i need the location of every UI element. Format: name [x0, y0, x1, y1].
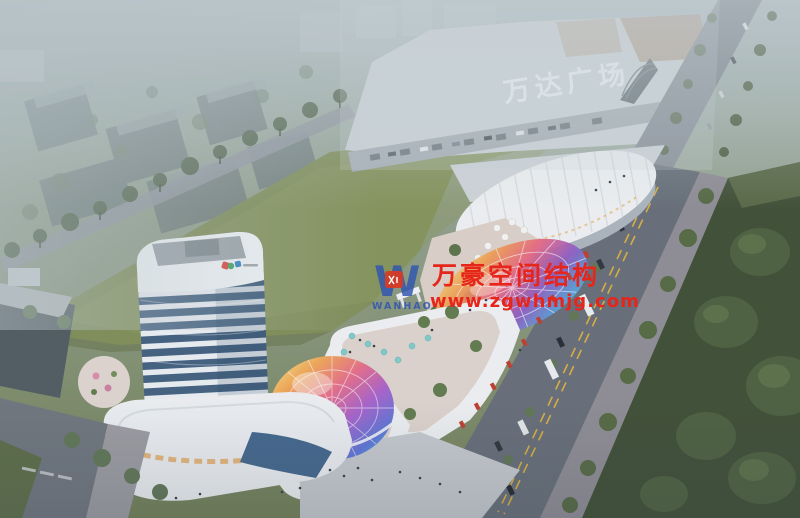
watermark-logo-text: WANHAO: [372, 301, 433, 312]
watermark-logo-badge: [385, 271, 403, 288]
watermark: W WANHAO 万豪空间结构 www.zgwhmjg.com: [372, 257, 640, 312]
aerial-rendering: 万达广场: [0, 0, 800, 518]
watermark-url: www.zgwhmjg.com: [430, 291, 640, 312]
watermark-brand-text: 万豪空间结构: [432, 261, 600, 290]
scene-canvas: 万达广场: [0, 0, 800, 518]
